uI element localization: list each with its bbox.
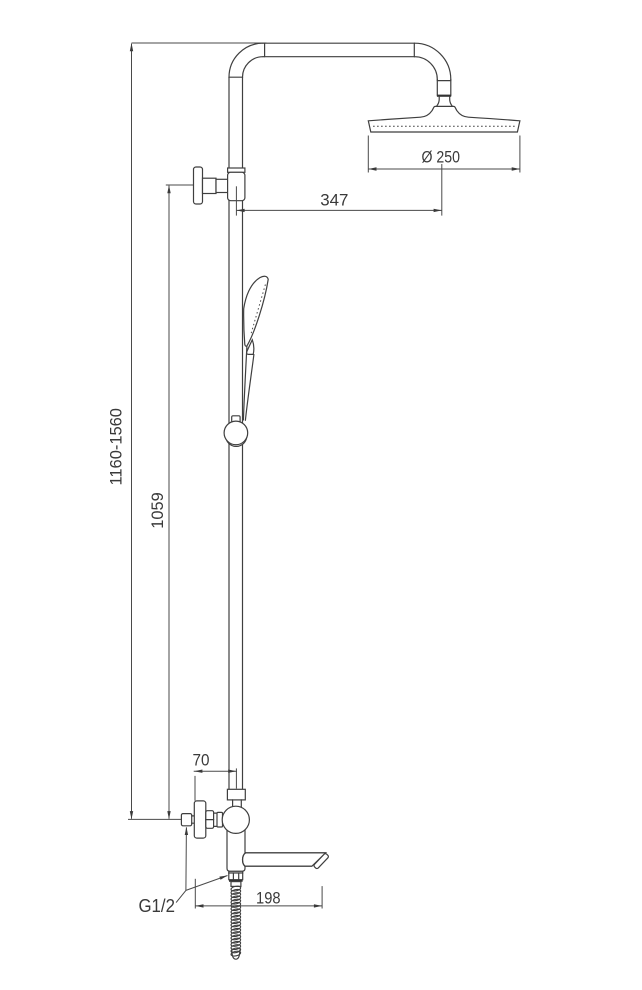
svg-text:198: 198 [256,889,281,908]
svg-text:347: 347 [320,190,348,209]
svg-text:1059: 1059 [149,492,167,529]
svg-text:Ø 250: Ø 250 [421,148,460,167]
svg-text:70: 70 [193,751,210,770]
svg-text:G1/2: G1/2 [138,896,175,916]
svg-text:1160-1560: 1160-1560 [108,408,126,486]
